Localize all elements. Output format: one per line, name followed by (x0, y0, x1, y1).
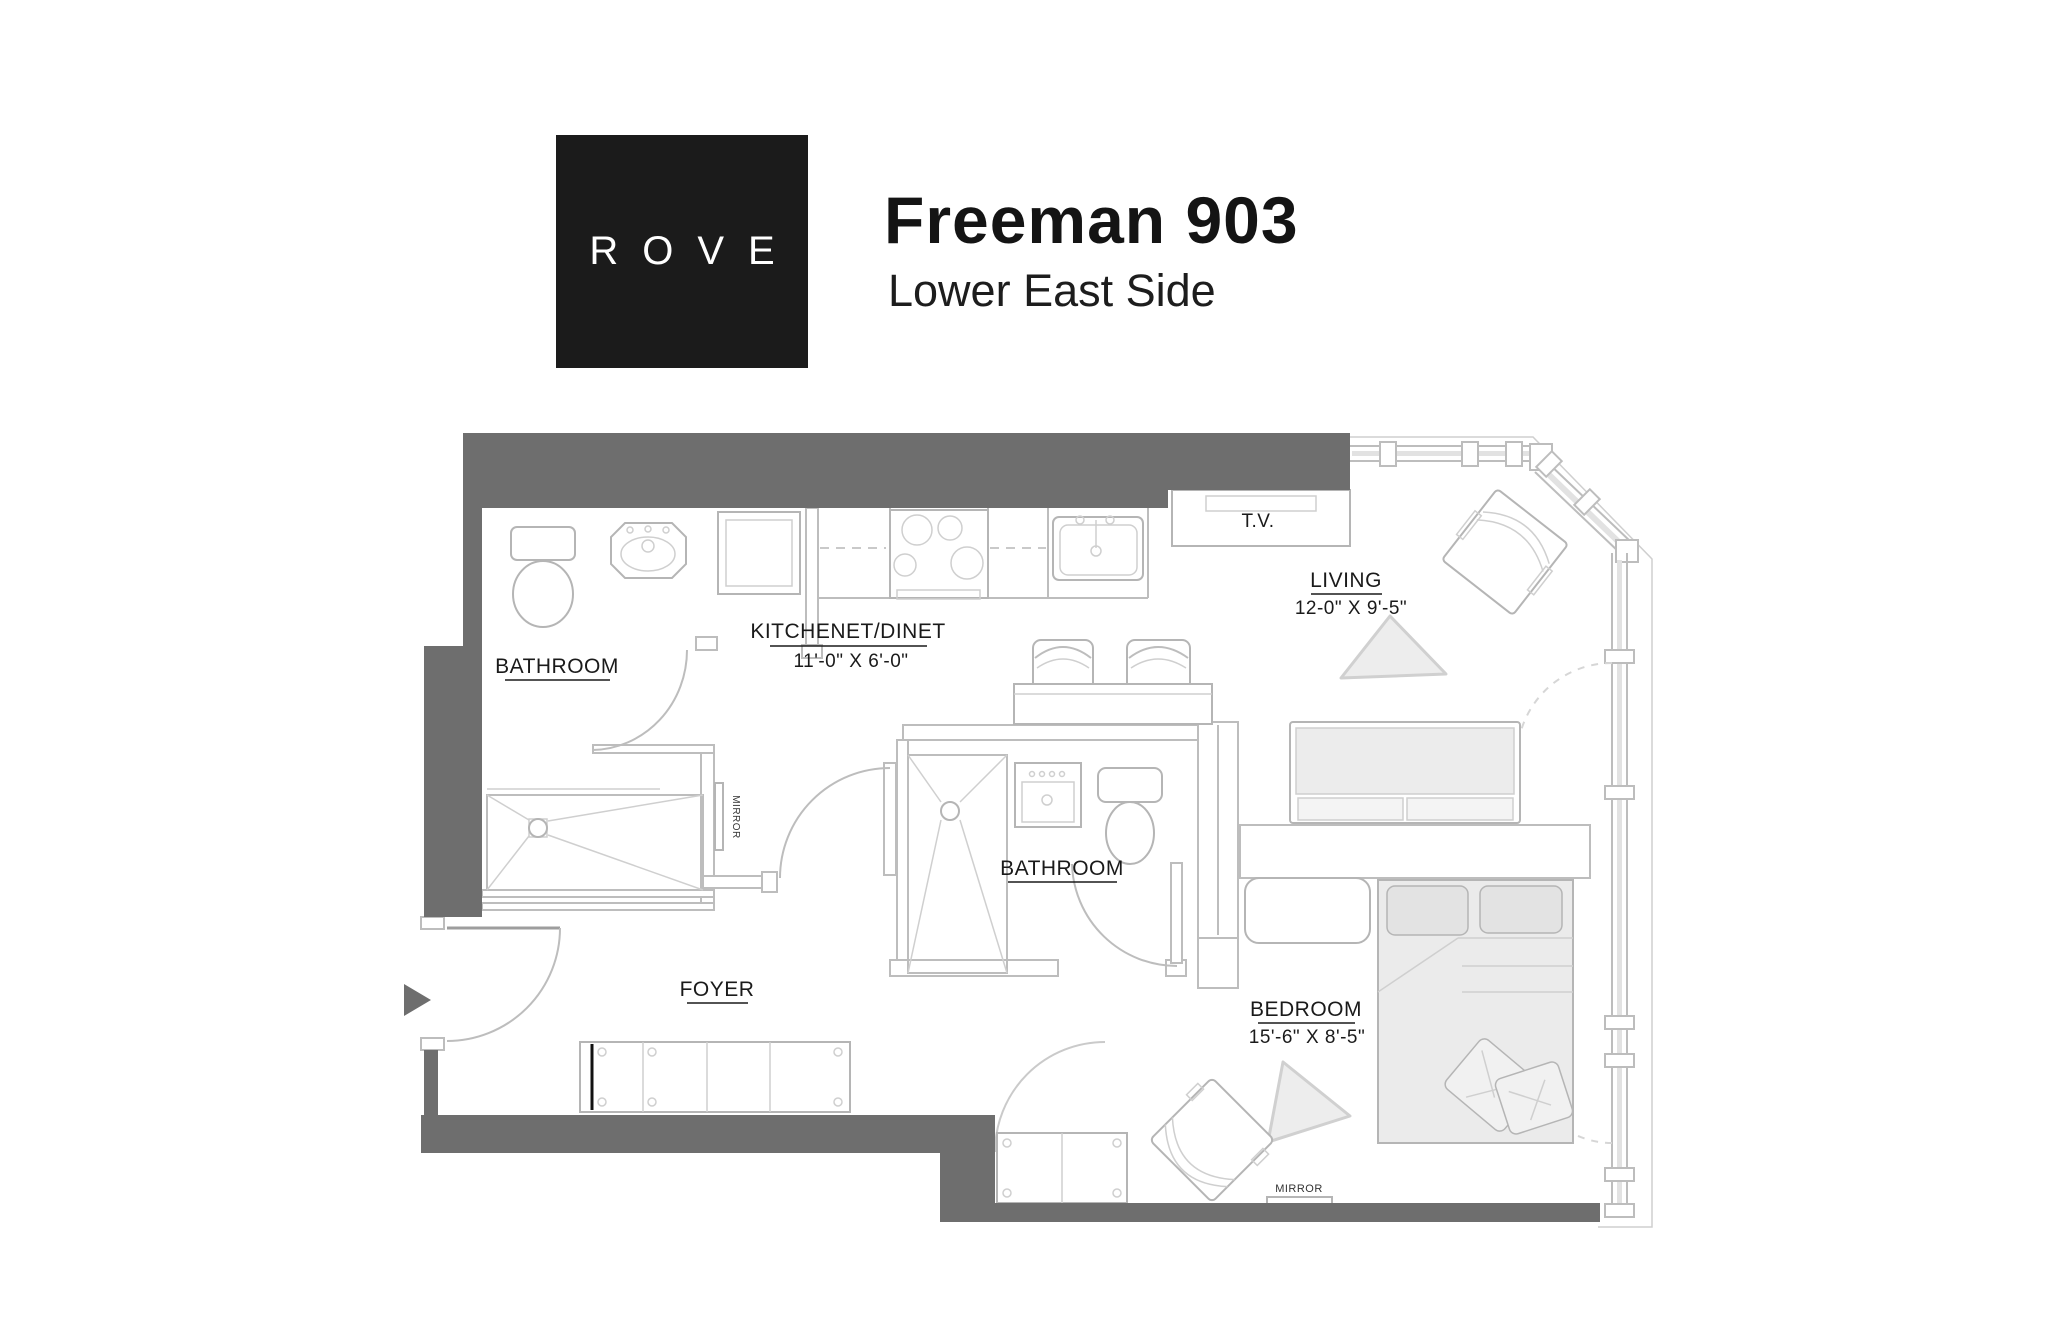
living-dimensions: 12-0" X 9'-5" (1295, 598, 1407, 619)
window-mullion (1605, 786, 1634, 799)
door-jamb (421, 1038, 444, 1050)
bathroom-sink-icon (1015, 763, 1081, 827)
window-mullion (1605, 1168, 1634, 1181)
fridge-icon (718, 512, 800, 594)
sofa (1290, 722, 1520, 823)
entry-arrow-icon (404, 984, 431, 1016)
window-mullion (1506, 442, 1522, 466)
kitchen-dimensions: 11'-0" X 6'-0" (793, 651, 908, 672)
window-mullion (1605, 1204, 1634, 1217)
entry-door (447, 928, 560, 1041)
dining-set (1014, 640, 1212, 724)
desk-chair (1146, 1074, 1279, 1207)
living-rug (1341, 616, 1446, 678)
armchair (1439, 486, 1572, 617)
mirror: MIRROR (715, 783, 741, 850)
window-mullion (1574, 489, 1599, 514)
door-jamb (421, 917, 444, 929)
mirror-label: MIRROR (1275, 1183, 1323, 1195)
bedroom-mirror: MIRROR (1267, 1183, 1332, 1204)
balcony-door-swing (1517, 663, 1612, 758)
door-leaf (1171, 863, 1182, 963)
door-swing (447, 928, 560, 1041)
kitchen-counter (718, 508, 1148, 599)
door-jamb (762, 872, 777, 892)
door-swing (780, 768, 890, 878)
floor-plan: T.V. (0, 0, 2048, 1325)
floor-plan-page: ROVE Freeman 903 Lower East Side (0, 0, 2048, 1325)
bathroom2-label: BATHROOM (1000, 857, 1124, 880)
tv-label: T.V. (1242, 511, 1275, 532)
pillow (1480, 886, 1562, 933)
door-jamb (696, 637, 717, 650)
kitchen-sink-icon (1053, 516, 1143, 580)
pillow (1387, 886, 1468, 935)
window-mullion (1605, 650, 1634, 663)
bedroom-cabinet (997, 1133, 1127, 1203)
shower-icon (908, 755, 1007, 973)
toilet-icon (1098, 768, 1162, 864)
window-mullion (1462, 442, 1478, 466)
bedroom-dimensions: 15'-6" X 8'-5" (1249, 1027, 1365, 1048)
tv-console: T.V. (1172, 490, 1350, 546)
toilet-icon (511, 527, 575, 627)
island-table (1014, 684, 1212, 724)
bathroom1-fixtures: MIRROR (487, 523, 741, 890)
bedroom-rug (1268, 1062, 1350, 1142)
foyer-label: FOYER (680, 978, 755, 1001)
window-mullion (1605, 1016, 1634, 1029)
kitchen-label: KITCHENET/DINET (750, 620, 945, 643)
bedroom-label: BEDROOM (1250, 998, 1362, 1021)
living-label: LIVING (1310, 569, 1382, 592)
nightstand (1245, 878, 1370, 943)
bathroom-sink-icon (611, 523, 686, 578)
door-leaf (884, 763, 896, 875)
window-mullion (1380, 442, 1396, 466)
bathroom1-label: BATHROOM (495, 655, 619, 678)
bed (1378, 880, 1574, 1143)
stove-icon (890, 510, 988, 599)
window-mullion (1605, 1054, 1634, 1067)
mirror-label: MIRROR (730, 795, 741, 839)
shower-icon (487, 789, 703, 890)
foyer-console (580, 1042, 850, 1112)
